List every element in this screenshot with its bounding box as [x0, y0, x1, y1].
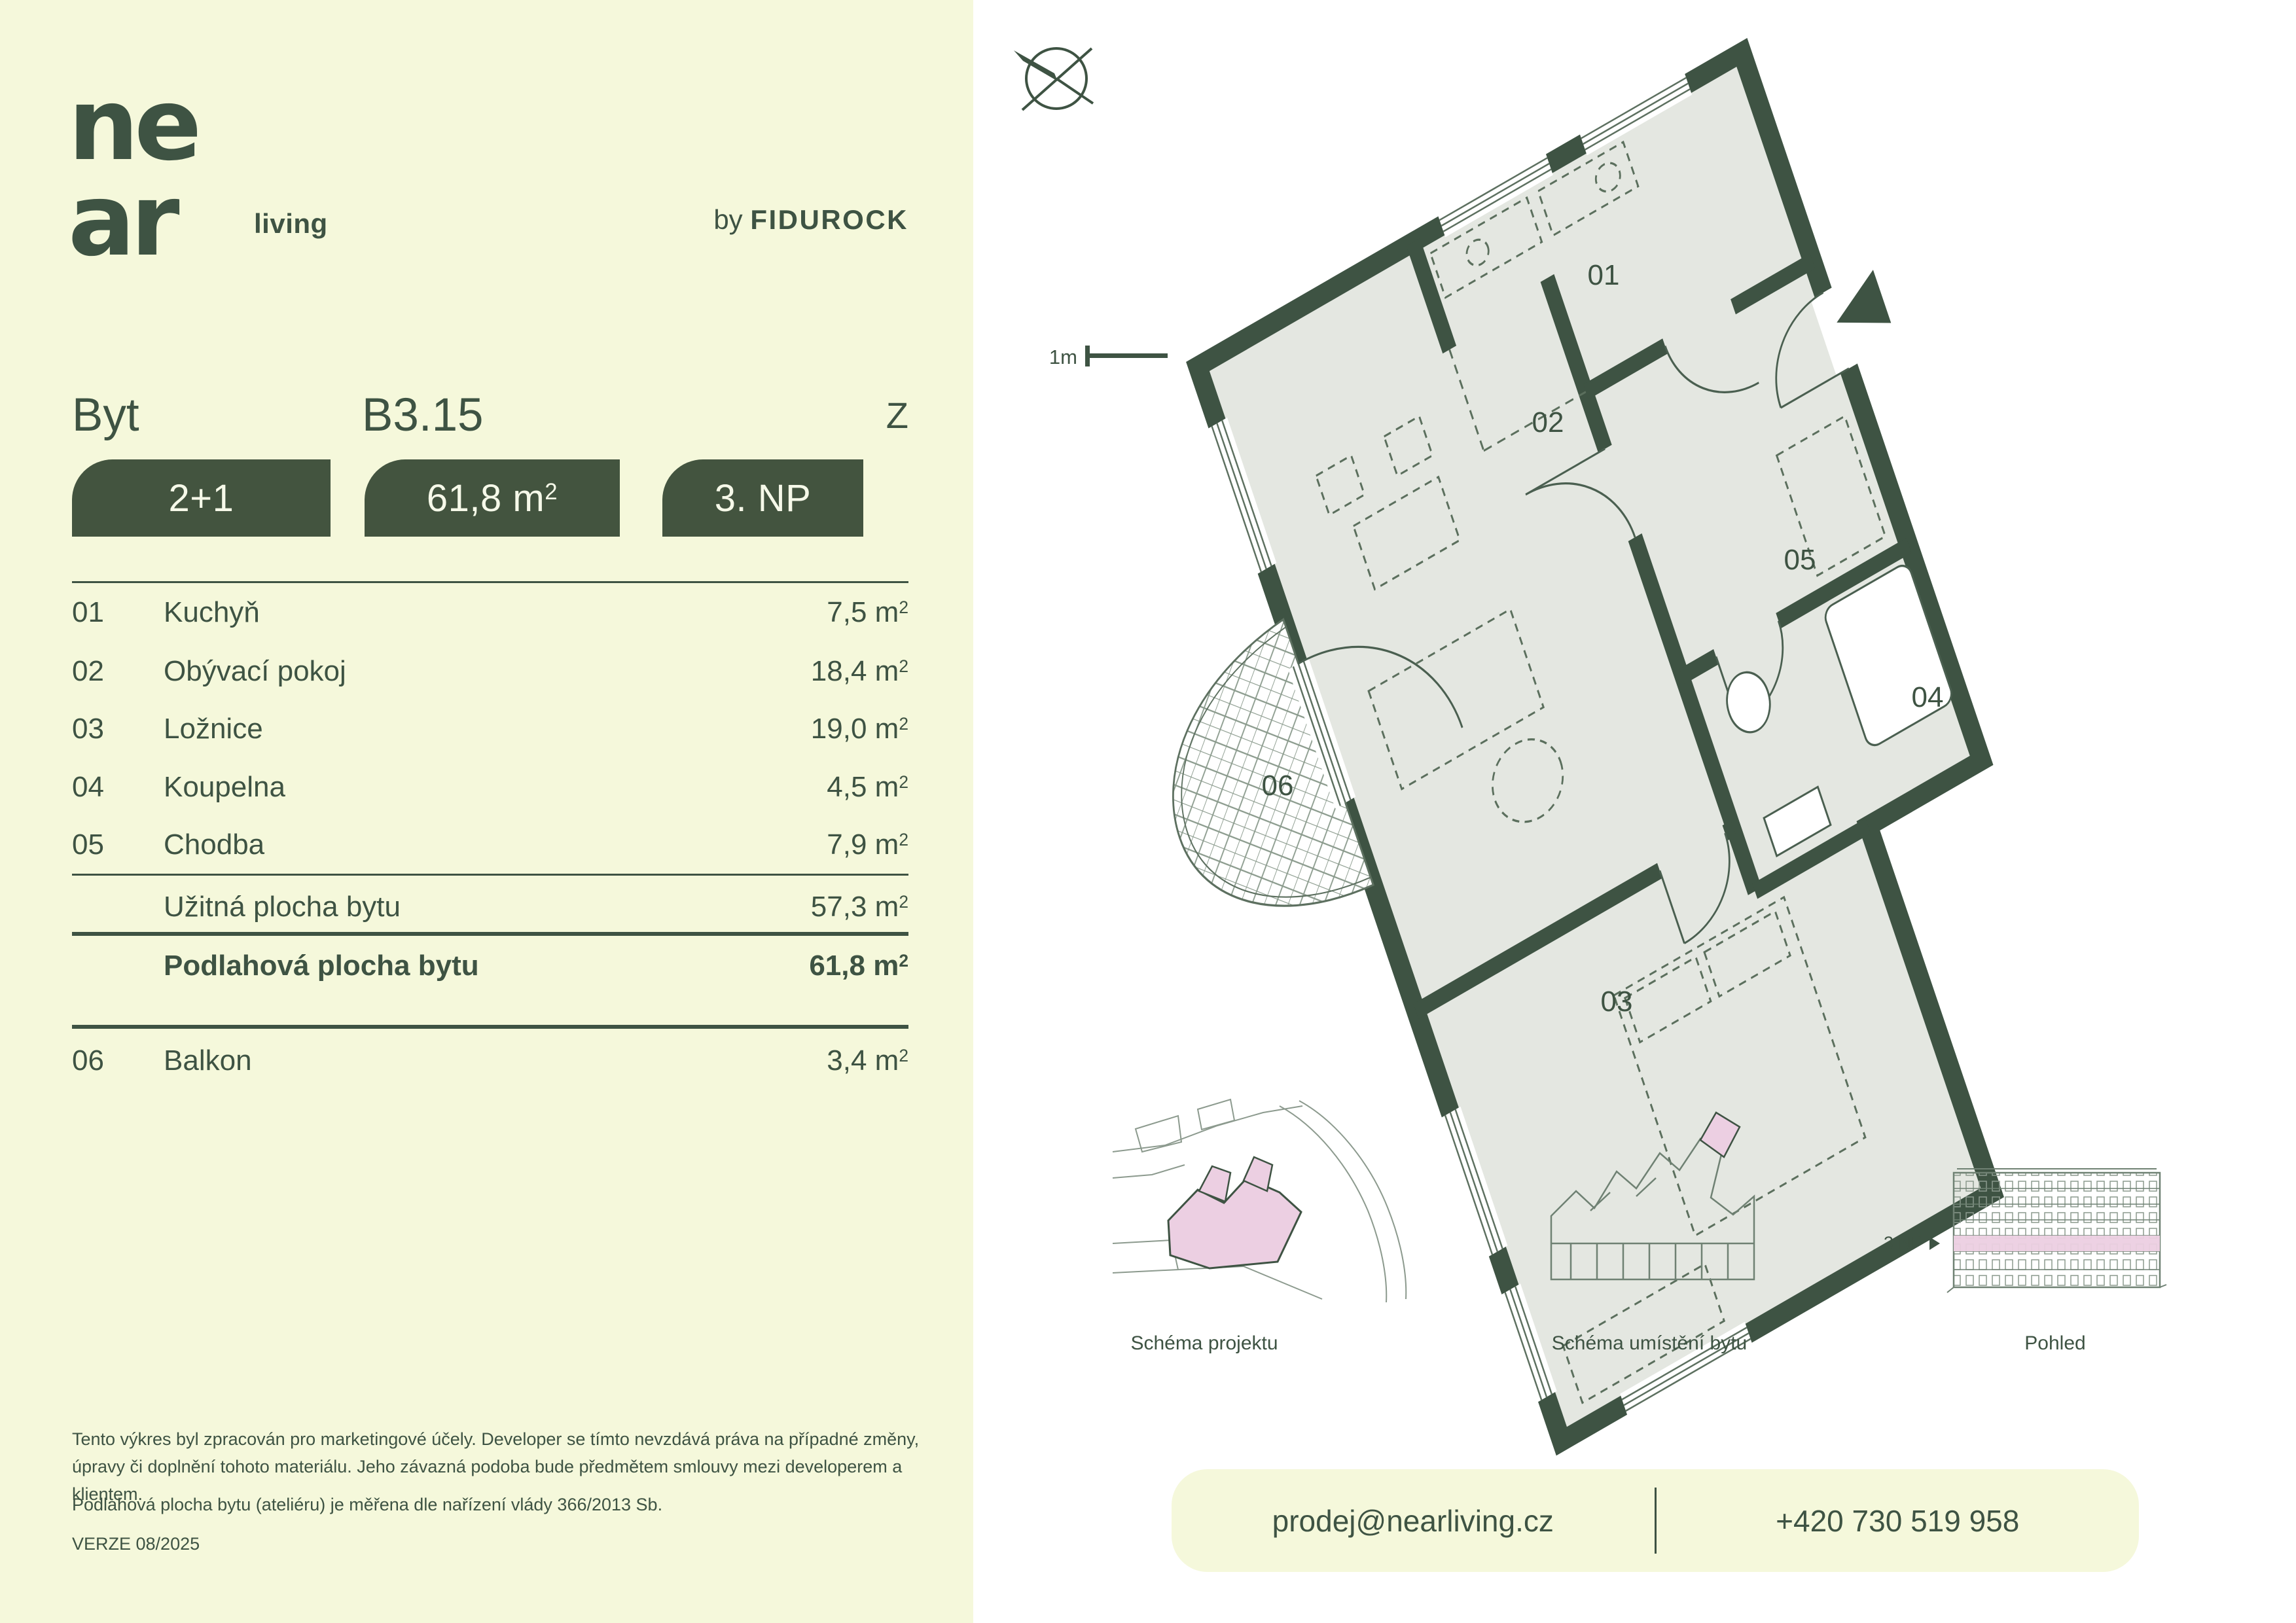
plan-label-01: 01	[1588, 259, 1620, 291]
room-area-value: 4,5	[827, 771, 867, 803]
floor-marker-label: 3.NP	[1884, 1233, 1923, 1253]
floor-area-number: 61,8	[809, 950, 865, 982]
unit-sup: 2	[899, 1046, 908, 1065]
unit-m: m	[875, 713, 899, 745]
measurement-note: Podlahová plocha bytu (ateliéru) je měře…	[72, 1491, 923, 1518]
room-name: Koupelna	[164, 771, 827, 804]
room-row-04: 04 Koupelna 4,5 m2	[72, 767, 908, 808]
plan-label-02: 02	[1532, 406, 1564, 438]
floor-marker-arrow-icon	[1929, 1237, 1940, 1250]
unit-m: m	[875, 891, 899, 923]
room-area: 7,5 m2	[827, 596, 908, 629]
table-rule-mid	[72, 874, 908, 876]
unit-m: m	[875, 596, 899, 628]
table-rule-top	[72, 581, 908, 583]
room-num: 06	[72, 1044, 164, 1077]
byline: by FIDUROCK	[713, 204, 908, 236]
room-name: Chodba	[164, 829, 827, 861]
room-num: 04	[72, 771, 164, 804]
caption-schema-umisteni: Schéma umístění bytu	[1552, 1332, 1747, 1354]
badge-area-value: 61,8	[427, 477, 502, 520]
schematic-project: Schéma projektu	[1113, 1099, 1406, 1354]
unit-sup: 2	[899, 772, 908, 792]
unit-m: m	[875, 771, 899, 803]
plan-label-03: 03	[1601, 986, 1633, 1018]
badge-floor-label: 3. NP	[715, 476, 812, 520]
room-area: 19,0 m2	[811, 713, 908, 745]
unit-m: m	[875, 1044, 899, 1077]
unit-sup: 2	[899, 892, 908, 912]
room-area-value: 19,0	[811, 713, 867, 745]
floor-area-value: 61,8 m2	[809, 950, 908, 982]
logo-line-1: ne	[68, 77, 197, 173]
room-num: 01	[72, 596, 164, 629]
table-rule-thick-1	[72, 932, 908, 936]
unit-type-label: Byt	[72, 389, 139, 442]
room-row-05: 05 Chodba 7,9 m2	[72, 825, 908, 865]
plan-label-06: 06	[1262, 770, 1294, 802]
room-area: 7,9 m2	[827, 829, 908, 861]
plan-label-04: 04	[1912, 681, 1944, 713]
room-row-03: 03 Ložnice 19,0 m2	[72, 709, 908, 749]
unit-sup: 2	[899, 714, 908, 734]
room-num: 02	[72, 655, 164, 688]
version-label: VERZE 08/2025	[72, 1530, 923, 1558]
badge-layout-label: 2+1	[169, 476, 234, 520]
room-area: 4,5 m2	[827, 771, 908, 804]
room-area-value: 3,4	[827, 1044, 867, 1077]
unit-m: m	[873, 950, 899, 982]
room-area-value: 18,4	[811, 655, 867, 687]
contact-bar: prodej@nearliving.cz +420 730 519 958	[1172, 1469, 2139, 1572]
room-name: Kuchyň	[164, 596, 827, 629]
room-name: Obývací pokoj	[164, 655, 811, 688]
contact-email[interactable]: prodej@nearliving.cz	[1172, 1469, 1655, 1572]
unit-sup: 2	[899, 951, 908, 971]
unit-sup: 2	[545, 479, 558, 505]
room-name: Ložnice	[164, 713, 811, 745]
usable-area-row: Užitná plocha bytu 57,3 m2	[72, 887, 908, 927]
logo-line-2: ar	[68, 173, 197, 268]
badge-floor: 3. NP	[662, 459, 863, 537]
unit-m: m	[875, 655, 899, 687]
room-area-value: 7,9	[827, 829, 867, 861]
usable-area-label: Užitná plocha bytu	[164, 891, 811, 923]
unit-sup: 2	[899, 597, 908, 617]
apartment-plan	[1045, 13, 2158, 1538]
scale-label: 1m	[1049, 346, 1077, 368]
floor-area-label: Podlahová plocha bytu	[164, 950, 809, 982]
unit-m: m	[875, 829, 899, 861]
usable-area-value: 57,3 m2	[811, 891, 908, 923]
unit-m: m	[512, 477, 545, 520]
balcony-row: 06 Balkon 3,4 m2	[72, 1041, 908, 1081]
usable-area-number: 57,3	[811, 891, 867, 923]
room-area-value: 7,5	[827, 596, 867, 628]
orientation-label: Z	[886, 394, 908, 437]
room-num: 05	[72, 829, 164, 861]
plan-label-05: 05	[1784, 544, 1816, 576]
table-rule-thick-2	[72, 1025, 908, 1029]
room-area: 3,4 m2	[827, 1044, 908, 1077]
badge-layout: 2+1	[72, 459, 331, 537]
logo-living-label: living	[254, 208, 328, 240]
contact-phone[interactable]: +420 730 519 958	[1657, 1469, 2140, 1572]
unit-header: Byt B3.15 Z	[0, 389, 973, 437]
unit-sup: 2	[899, 830, 908, 849]
badge-area: 61,8 m2	[365, 459, 620, 537]
floor-area-row: Podlahová plocha bytu 61,8 m2	[72, 946, 908, 986]
caption-schema-projektu: Schéma projektu	[1130, 1332, 1278, 1354]
room-area: 18,4 m2	[811, 655, 908, 688]
compass-icon	[1014, 48, 1093, 110]
scale-bar: 1m	[1049, 346, 1168, 368]
room-name: Balkon	[164, 1044, 827, 1077]
by-prefix: by	[713, 204, 750, 235]
caption-pohled: Pohled	[2024, 1332, 2085, 1354]
near-logo: ne ar	[68, 77, 197, 268]
unit-id: B3.15	[362, 389, 484, 442]
room-row-02: 02 Obývací pokoj 18,4 m2	[72, 651, 908, 692]
room-row-01: 01 Kuchyň 7,5 m2	[72, 592, 908, 633]
badge-area-label: 61,8 m2	[427, 476, 558, 520]
unit-sup: 2	[899, 656, 908, 676]
fidurock-wordmark: FIDUROCK	[750, 204, 908, 235]
info-panel: ne ar living by FIDUROCK Byt B3.15 Z 2+1…	[0, 0, 973, 1623]
room-num: 03	[72, 713, 164, 745]
